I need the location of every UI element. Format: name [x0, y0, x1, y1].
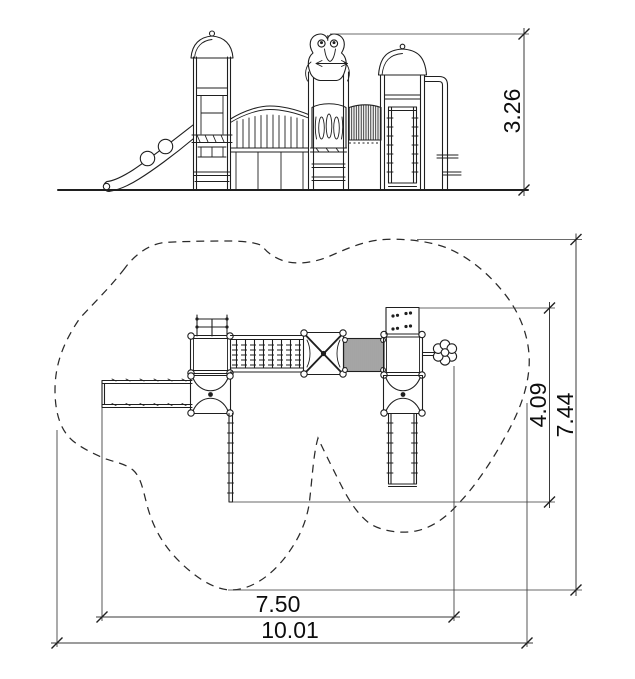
tower-2-decorative-crest: [308, 34, 346, 80]
steering-wheel-plan: [423, 340, 457, 365]
plan-view: 4.09 7.44 7.50 10.01: [51, 234, 582, 649]
bridge-balusters: [237, 115, 303, 148]
elevation-view: 3.26: [58, 28, 530, 196]
climb-wall-plan: [343, 338, 386, 373]
tube-slide-elevation: [387, 107, 418, 187]
dimension-plan-inner-depth: 4.09: [233, 302, 556, 508]
clatter-bridge-plan: [231, 336, 304, 373]
tube-slide-plan: [387, 414, 418, 487]
access-ladder-plan: [195, 315, 228, 336]
overhead-pipe-post: [425, 77, 461, 191]
roof-finial: [210, 31, 215, 36]
slide-strip-plan: [228, 414, 234, 503]
deck-b-plan: [301, 330, 346, 377]
tower-3: [379, 44, 427, 190]
step-rung: [437, 155, 461, 175]
safety-zone-boundary: [55, 239, 529, 590]
dim-plan-total-width-label: 10.01: [261, 617, 319, 643]
tunnel-a-plan: [188, 373, 233, 416]
tower-1: [191, 31, 233, 190]
dim-elevation-height-label: 3.26: [499, 89, 525, 134]
slide-porthole: [158, 139, 172, 153]
deck-a-plan: [188, 333, 233, 376]
wave-slide: [103, 125, 193, 192]
slide-end-cap: [103, 183, 109, 189]
roof-finial: [400, 44, 405, 49]
leaf-climb-panel: [312, 104, 346, 148]
dim-plan-total-depth-label: 7.44: [552, 392, 578, 437]
dim-plan-inner-depth-label: 4.09: [525, 383, 551, 428]
deck-c-plan: [381, 331, 425, 378]
tower-2: [306, 34, 350, 190]
arch-bridge: [231, 106, 309, 189]
dim-plan-inner-width-label: 7.50: [256, 591, 301, 617]
bridge-deck: [231, 148, 309, 152]
roller-climb-wall: [349, 105, 381, 143]
activity-panel-plan: [386, 308, 419, 335]
playground-technical-drawing: 3.26: [0, 0, 635, 679]
tower-3-dome-roof: [379, 49, 427, 75]
drawing-sheet: 3.26: [0, 0, 635, 679]
slide-porthole: [140, 151, 154, 165]
double-slide-plan: [102, 379, 192, 408]
deck-edge: [192, 135, 232, 143]
tunnel-c-plan: [381, 376, 425, 417]
